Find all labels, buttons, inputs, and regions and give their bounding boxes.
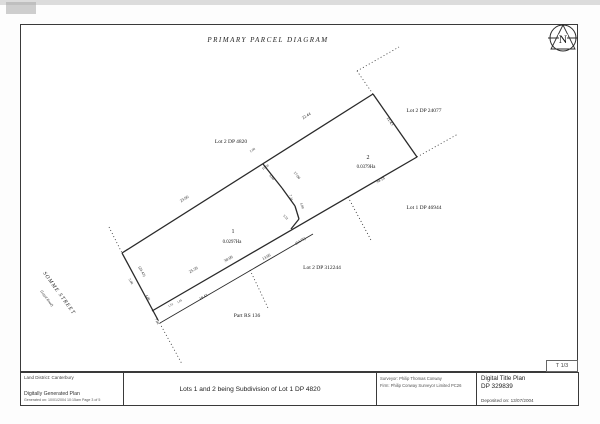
dimension-label: 4.00 [145,294,152,301]
adjoining-lot-label: Lot 2 DP 4820 [215,139,248,145]
title-block: Land District: Canterbury Digitally Gene… [20,372,579,406]
dimension-label: 19.42 [198,292,208,301]
generated-on-label: Generated on: 10/01/2004 10:15am Page 3 … [24,398,100,402]
offplan-east-boundary [417,134,458,157]
offplan-ne-boundary-a [357,71,373,94]
plan-number: DP 329839 [481,383,574,390]
adjoining-lot-label: Lot 2 DP 24077 [406,108,441,114]
north-arrow-icon: N [548,25,578,51]
dimension-label: 5.00 [128,278,135,285]
title-block-title-cell: Lots 1 and 2 being Subdivision of Lot 1 … [123,373,376,405]
dimension-label: 1.52 [167,302,174,308]
dimension-label: (24.43) [137,266,146,278]
parcel-diagram: N Lot 2 DP 4820Lot 2 DP 24077Lot 1 DP 46… [0,0,600,424]
title-block-plan-cell: Digital Title Plan DP 329839 Deposited o… [476,373,578,405]
dp312244-rs-boundary [250,270,268,308]
surveyor-firm: Firm: Philip Conway Surveyor Limited PC2… [380,383,473,390]
dimension-label: 17.06 [293,171,301,180]
dimension-label: 6.00 [268,174,275,181]
street-extension-south [158,320,182,364]
lot1-area: 0.0297Ha [223,240,243,245]
north-letter: N [559,32,568,46]
dimension-label: 23.96 [179,194,190,203]
lot2-number: 2 [367,155,370,161]
offplan-ne-boundary-b [357,47,399,71]
street-status: (Legal Road) [40,290,55,308]
street-extension-north [109,227,122,253]
lot1-lot2-boundary-c [295,206,299,219]
dimension-label: 3.51 [282,214,289,221]
dimension-label: 25.59 [188,265,199,274]
dimension-label: 4.00 [299,202,305,209]
dimension-label: 1.05 [176,298,183,304]
plan-type-label: Digital Title Plan [481,375,574,382]
lot2-area: 0.0379Ha [357,165,377,170]
adjoining-lot-label: Lot 2 DP 312244 [303,265,341,271]
lot1-number: 1 [232,229,235,235]
adjoining-lot-label: Lot 1 DP 46944 [406,205,441,211]
deposited-date: Deposited on: 13/07/2004 [481,398,534,403]
sheet-index-box: T 1/3 [546,360,578,372]
dp46944-dp312244-boundary [348,197,372,242]
dimension-label: 30.09 [223,254,234,263]
dimension-label: 1.00 [249,147,256,154]
title-block-surveyor-cell: Surveyor: Philip Thomas Conway Firm: Phi… [376,373,476,405]
land-district-label: Land District: Canterbury [24,375,120,380]
plan-title: Lots 1 and 2 being Subdivision of Lot 1 … [179,386,320,393]
survey-plan-sheet: PRIMARY PARCEL DIAGRAM N Lot 2 DP 4820Lo… [0,0,600,424]
surveyor-name: Surveyor: Philip Thomas Conway [380,376,473,383]
dimension-label: 13.66 [261,252,271,261]
dimension-label: (54.75) [294,235,307,245]
dimension-label: 7.34 [288,194,294,201]
dimension-label: 7.00 [154,318,161,325]
rear-parallel-boundary [160,234,313,323]
northwest-boundary [122,94,373,253]
dimension-label: 11.43 [386,116,395,126]
dimension-label: 22.44 [301,111,312,121]
digitally-generated-label: Digitally Generated Plan [24,391,80,397]
sheet-index-label: T 1/3 [556,363,568,369]
adjoining-lot-label: Part RS 136 [234,313,261,319]
lot2-northeast-boundary [373,94,417,157]
title-block-district-cell: Land District: Canterbury Digitally Gene… [21,373,123,405]
